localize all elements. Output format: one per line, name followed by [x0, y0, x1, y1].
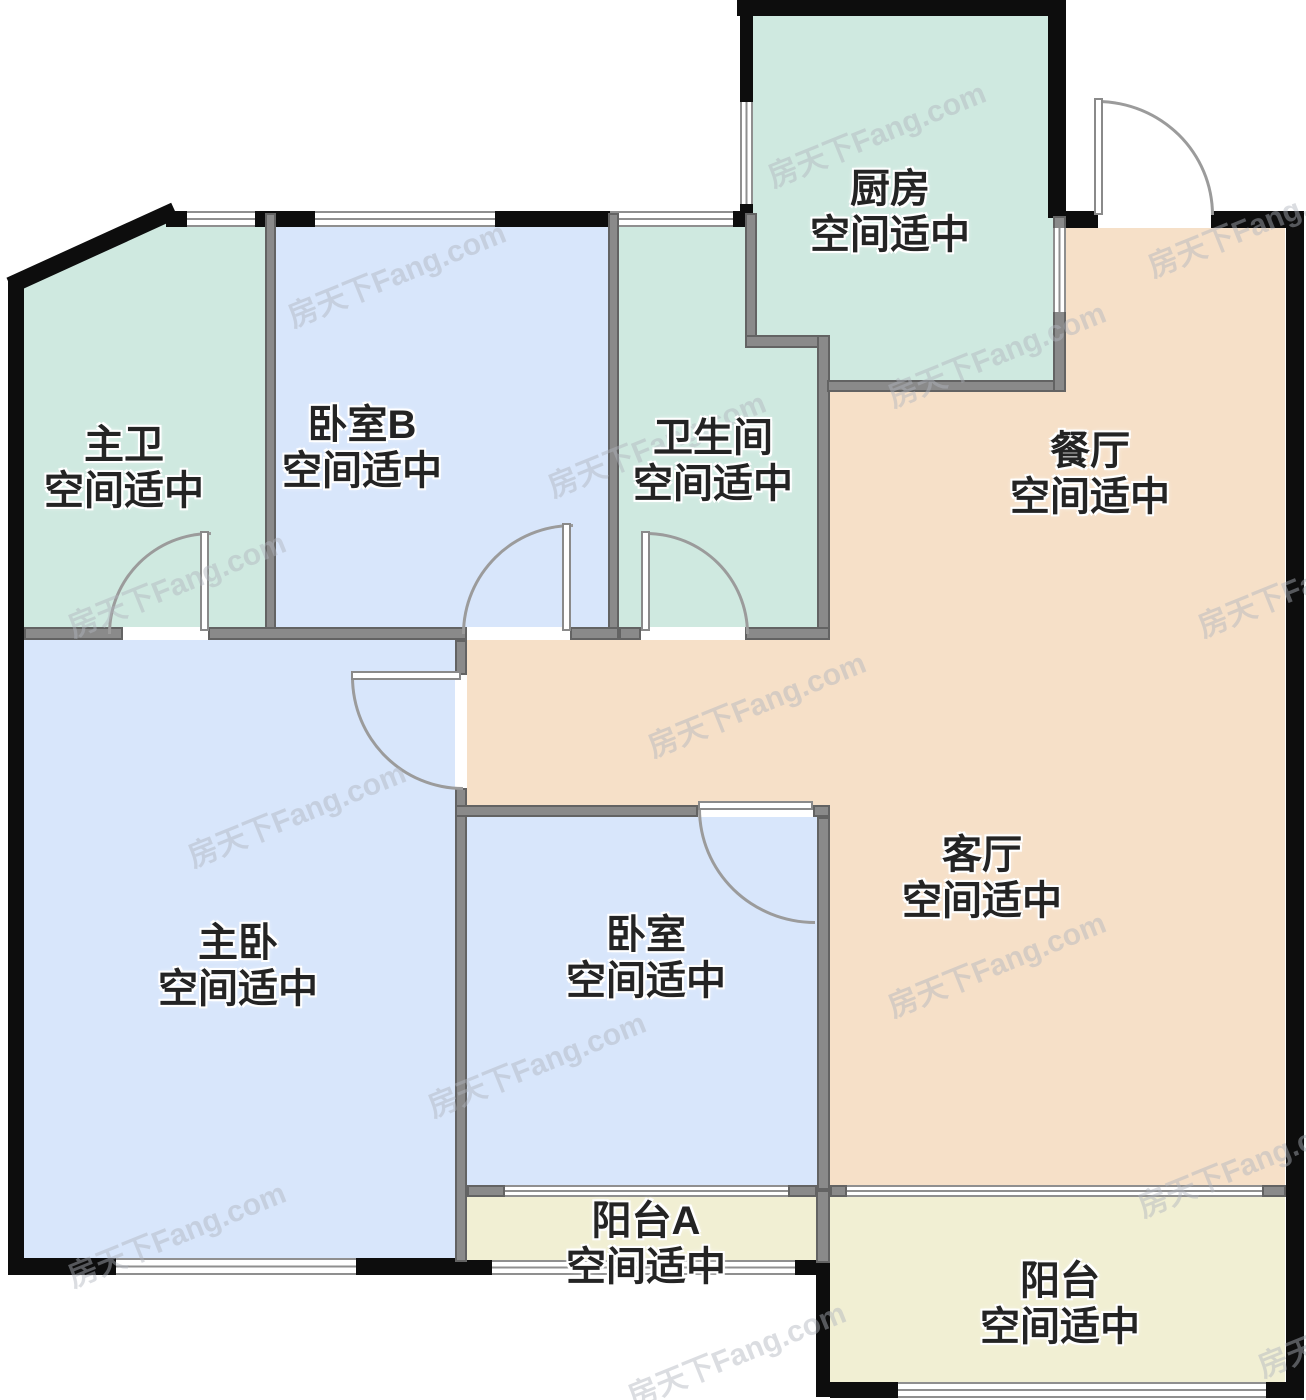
wall-kitchen-step-h	[745, 335, 827, 348]
room-bathroom-label: 卫生间 空间适中	[633, 415, 793, 507]
room-name: 主卫	[44, 422, 204, 468]
room-master-bedroom-label: 主卧 空间适中	[158, 920, 318, 1012]
wall-bottom-left	[8, 1258, 116, 1275]
room-status: 空间适中	[980, 1304, 1140, 1350]
master-bath-door-leaf	[200, 531, 209, 631]
room-living-label: 客厅 空间适中	[902, 832, 1062, 924]
window-living-balcony	[847, 1185, 1262, 1197]
wall-bedroomb-bathroom	[608, 213, 619, 629]
wall-living-balcony-l	[830, 1185, 847, 1197]
wall-kitchen-left-a	[740, 14, 753, 102]
room-balcony-a-label: 阳台A 空间适中	[566, 1198, 726, 1290]
bedroom-door-leaf	[698, 801, 813, 810]
wall-masterbath-bedroomb	[265, 213, 276, 633]
wall-master-right-b	[455, 788, 467, 1262]
wall-balcony-a-cap-left	[467, 1260, 492, 1275]
room-status: 空间适中	[158, 966, 318, 1012]
room-status: 空间适中	[566, 958, 726, 1004]
bathroom-door-leaf	[641, 531, 650, 631]
wall-living-balcony-r	[1262, 1185, 1286, 1197]
room-dining-label: 餐厅 空间适中	[1010, 428, 1170, 520]
wall-mid-seg4	[619, 627, 641, 640]
master-bedroom-door-leaf	[351, 671, 461, 680]
room-status: 空间适中	[566, 1244, 726, 1290]
wall-mid-seg3	[570, 627, 619, 640]
window-master-bath	[187, 211, 255, 227]
room-name: 客厅	[902, 832, 1062, 878]
railing-balcony	[898, 1382, 1266, 1398]
window-kitchen-left	[740, 102, 753, 204]
wall-balconya-balcony	[816, 1190, 830, 1263]
wall-master-right-a	[455, 640, 467, 675]
wall-bathroom-kitchen	[745, 213, 757, 348]
floor-plan: 房天下Fang.com 房天下Fang.com 房天下Fang.com 房天下F…	[0, 0, 1306, 1400]
room-name: 卫生间	[633, 415, 793, 461]
room-status: 空间适中	[902, 878, 1062, 924]
wall-mid-seg2	[208, 627, 467, 640]
room-status: 空间适中	[44, 468, 204, 514]
room-status: 空间适中	[633, 461, 793, 507]
room-status: 空间适中	[282, 448, 442, 494]
window-bedroom-b	[315, 211, 495, 227]
wall-balcony-left	[816, 1260, 830, 1397]
bedroom-b-door-leaf	[562, 523, 571, 631]
wall-kitchen-right-upper	[1048, 0, 1066, 218]
room-name: 阳台A	[566, 1198, 726, 1244]
wall-bottom-master	[356, 1258, 467, 1275]
room-name: 主卧	[158, 920, 318, 966]
window-kitchen-right	[1053, 228, 1066, 312]
window-bathroom	[610, 211, 733, 227]
room-status: 空间适中	[810, 212, 970, 258]
wall-right	[1286, 211, 1304, 1398]
room-balcony-label: 阳台 空间适中	[980, 1258, 1140, 1350]
entrance-door-leaf	[1094, 98, 1103, 215]
room-name: 阳台	[980, 1258, 1140, 1304]
wall-kitchen-bottom	[827, 380, 1066, 392]
wall-left	[8, 281, 24, 1275]
wall-bedroom-balconya-l	[467, 1185, 505, 1197]
room-kitchen-label: 厨房 空间适中	[810, 166, 970, 258]
wall-balcony-bottom-left	[830, 1382, 898, 1398]
room-status: 空间适中	[1010, 474, 1170, 520]
room-name: 厨房	[810, 166, 970, 212]
wall-bedroom-top-b	[813, 805, 830, 817]
window-bedroom-balcony-a	[505, 1185, 788, 1197]
entrance-door-arc	[1097, 100, 1214, 215]
room-bedroom-b-label: 卧室B 空间适中	[282, 402, 442, 494]
wall-bedroom-living	[817, 817, 830, 1190]
wall-kitchen-top	[737, 0, 1053, 16]
wall-balcony-a-cap-right	[795, 1260, 816, 1275]
wall-bedroom-balconya-r	[788, 1185, 817, 1197]
window-master-bedroom	[116, 1258, 356, 1275]
wall-mid-seg5	[745, 627, 830, 640]
wall-top-seg3	[495, 211, 610, 227]
wall-top-seg2	[255, 211, 315, 227]
room-name: 卧室B	[282, 402, 442, 448]
room-name: 卧室	[566, 912, 726, 958]
room-bedroom-label: 卧室 空间适中	[566, 912, 726, 1004]
room-master-bath-label: 主卫 空间适中	[44, 422, 204, 514]
wall-bedroom-top-a	[455, 805, 698, 817]
wall-top-seg1	[166, 211, 187, 227]
room-name: 餐厅	[1010, 428, 1170, 474]
wall-top-right-b	[1211, 211, 1286, 228]
